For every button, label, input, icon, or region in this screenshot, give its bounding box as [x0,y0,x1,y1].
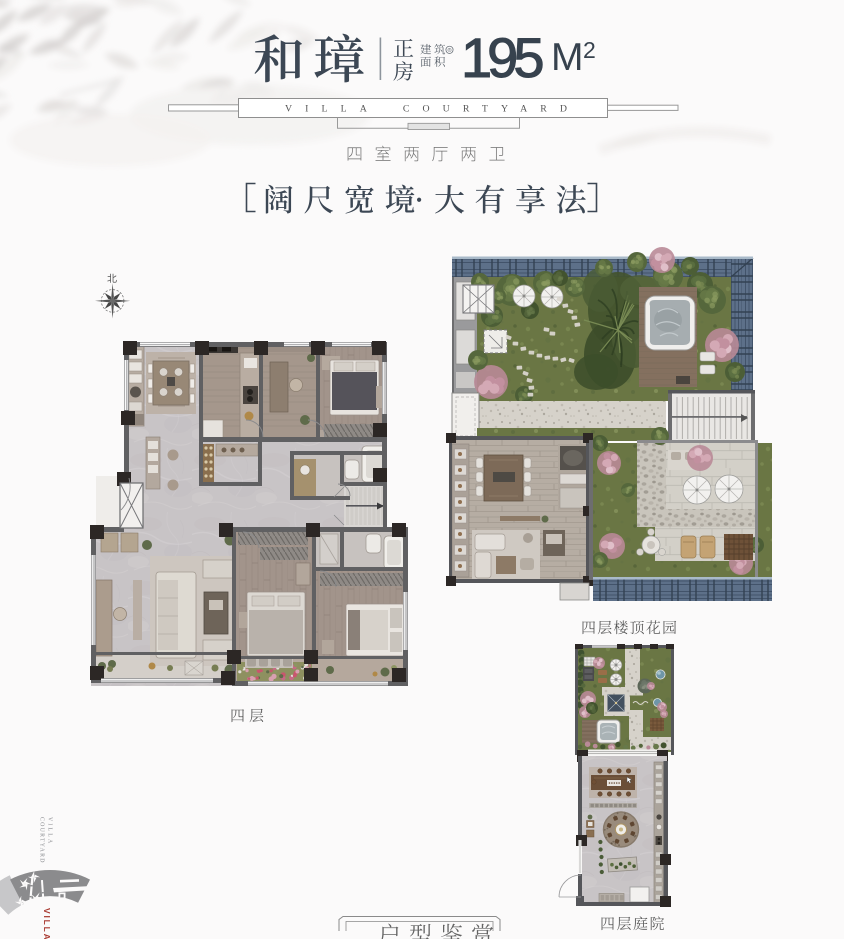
svg-text:VILLA: VILLA [42,908,52,939]
svg-text:VILLA COURTYARD: VILLA COURTYARD [285,103,567,114]
svg-text:®: ® [447,47,451,54]
svg-text:2: 2 [583,37,596,63]
svg-text:VILLA: VILLA [46,817,52,845]
svg-text:M: M [551,36,584,79]
svg-text:COURTYARD: COURTYARD [39,817,45,864]
svg-text:195: 195 [461,26,545,89]
